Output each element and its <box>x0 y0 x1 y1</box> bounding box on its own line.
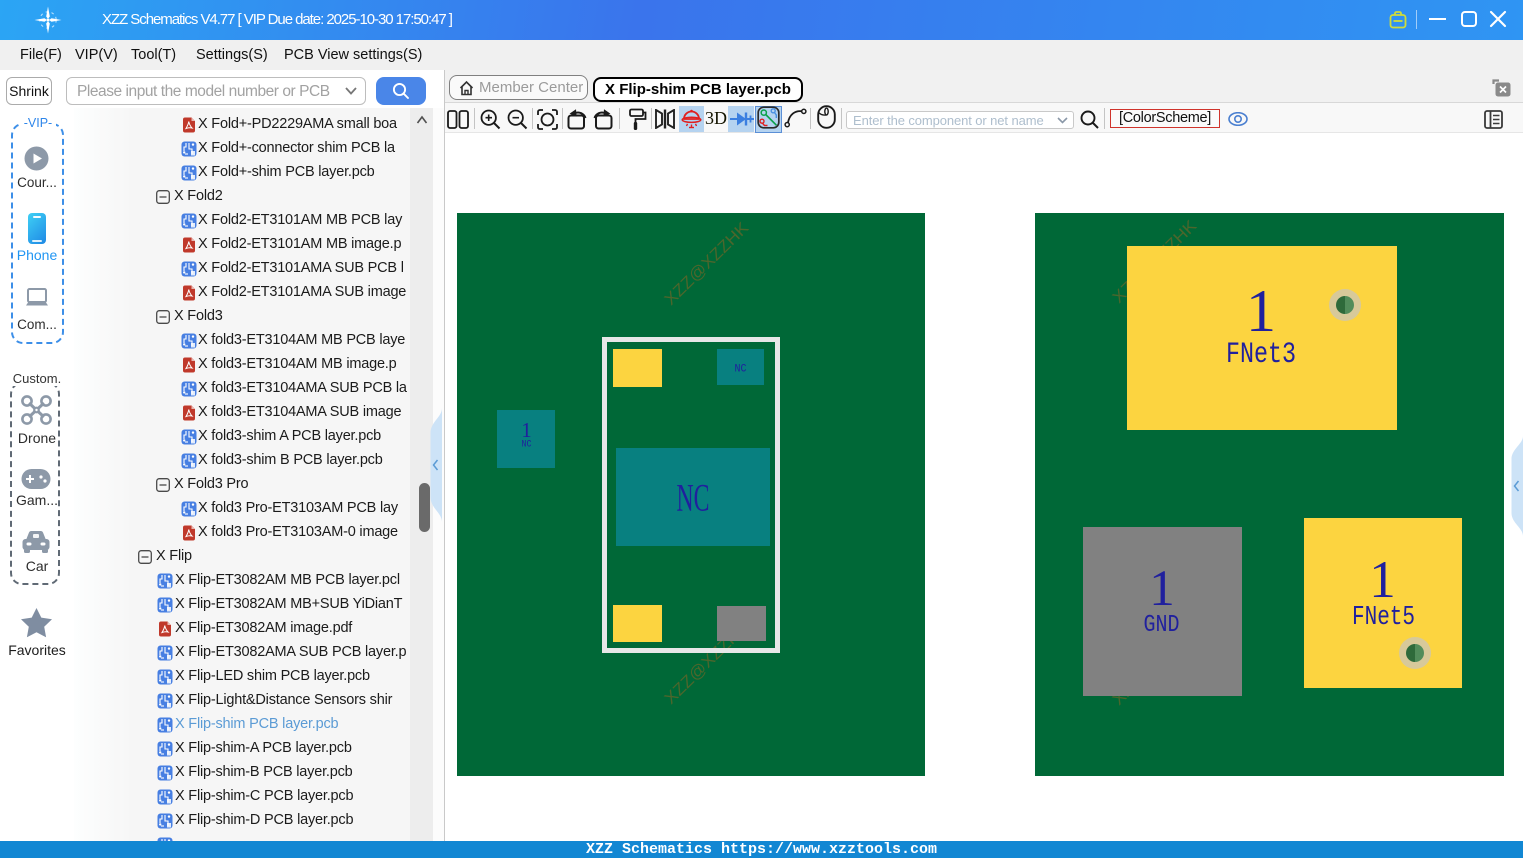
svg-text:NC: NC <box>735 364 747 376</box>
svg-text:1: 1 <box>1369 551 1396 609</box>
svg-text:NC: NC <box>677 477 710 520</box>
svg-text:GND: GND <box>1144 612 1180 639</box>
svg-text:1: 1 <box>1149 561 1175 617</box>
svg-text:1: 1 <box>521 418 532 442</box>
svg-text:FNet5: FNet5 <box>1352 603 1415 633</box>
svg-text:1: 1 <box>1246 278 1276 344</box>
svg-text:NC: NC <box>522 440 532 451</box>
svg-text:FNet3: FNet3 <box>1226 338 1296 372</box>
